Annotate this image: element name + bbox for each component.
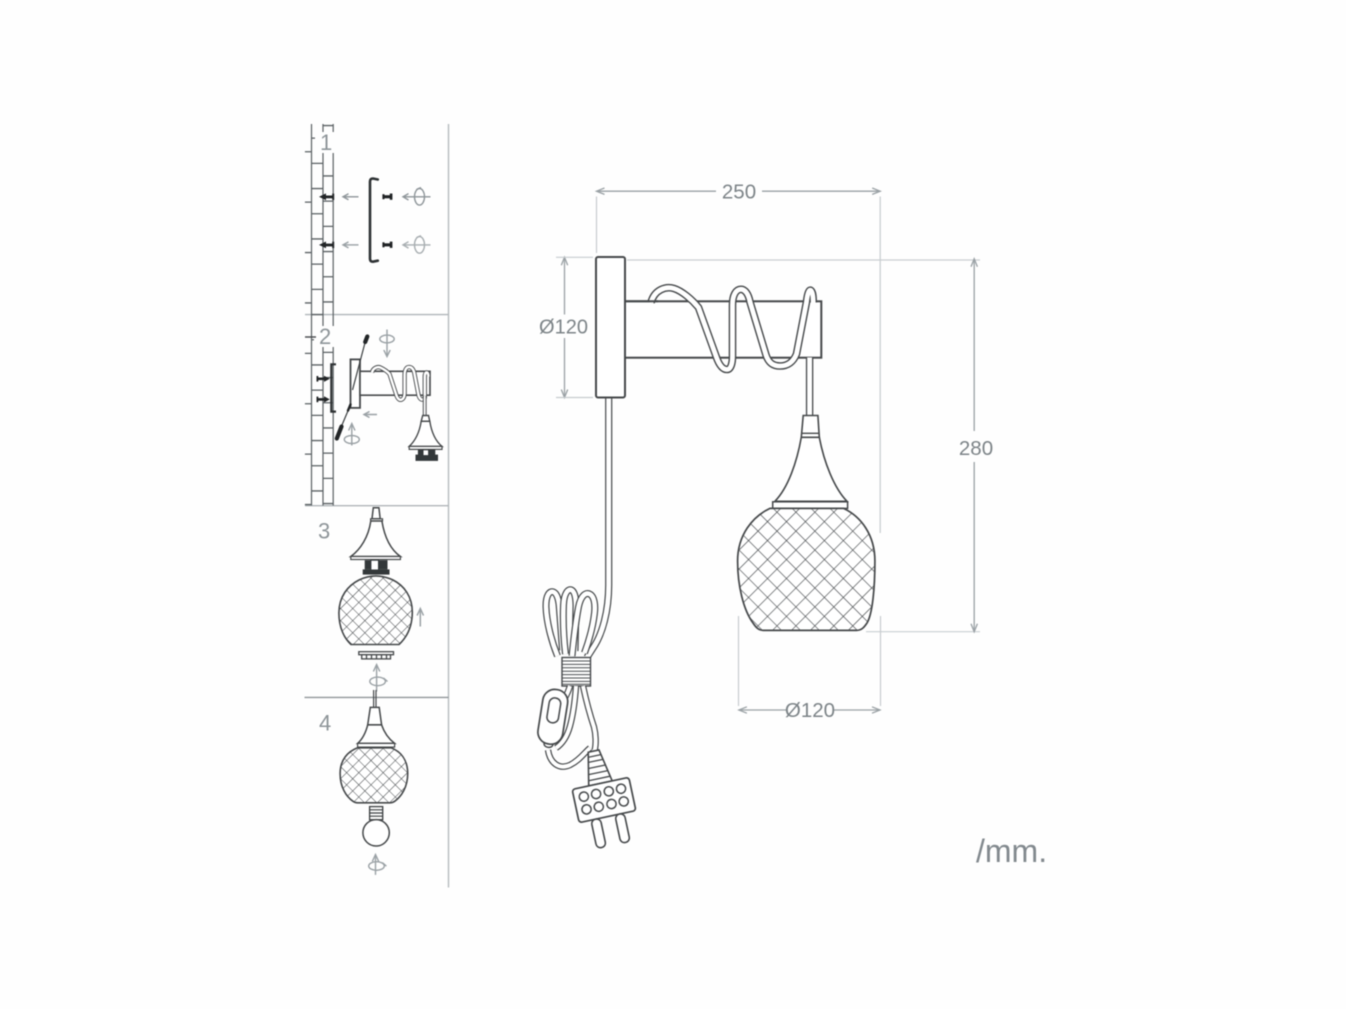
- svg-text:280: 280: [959, 437, 993, 460]
- svg-text:2: 2: [319, 324, 331, 349]
- svg-text:4: 4: [319, 711, 331, 736]
- svg-text:1: 1: [320, 130, 332, 155]
- svg-text:250: 250: [722, 181, 756, 204]
- svg-text:/mm.: /mm.: [976, 833, 1047, 869]
- svg-text:Ø120: Ø120: [539, 317, 588, 339]
- svg-text:Ø120: Ø120: [785, 699, 835, 722]
- svg-text:3: 3: [318, 519, 330, 544]
